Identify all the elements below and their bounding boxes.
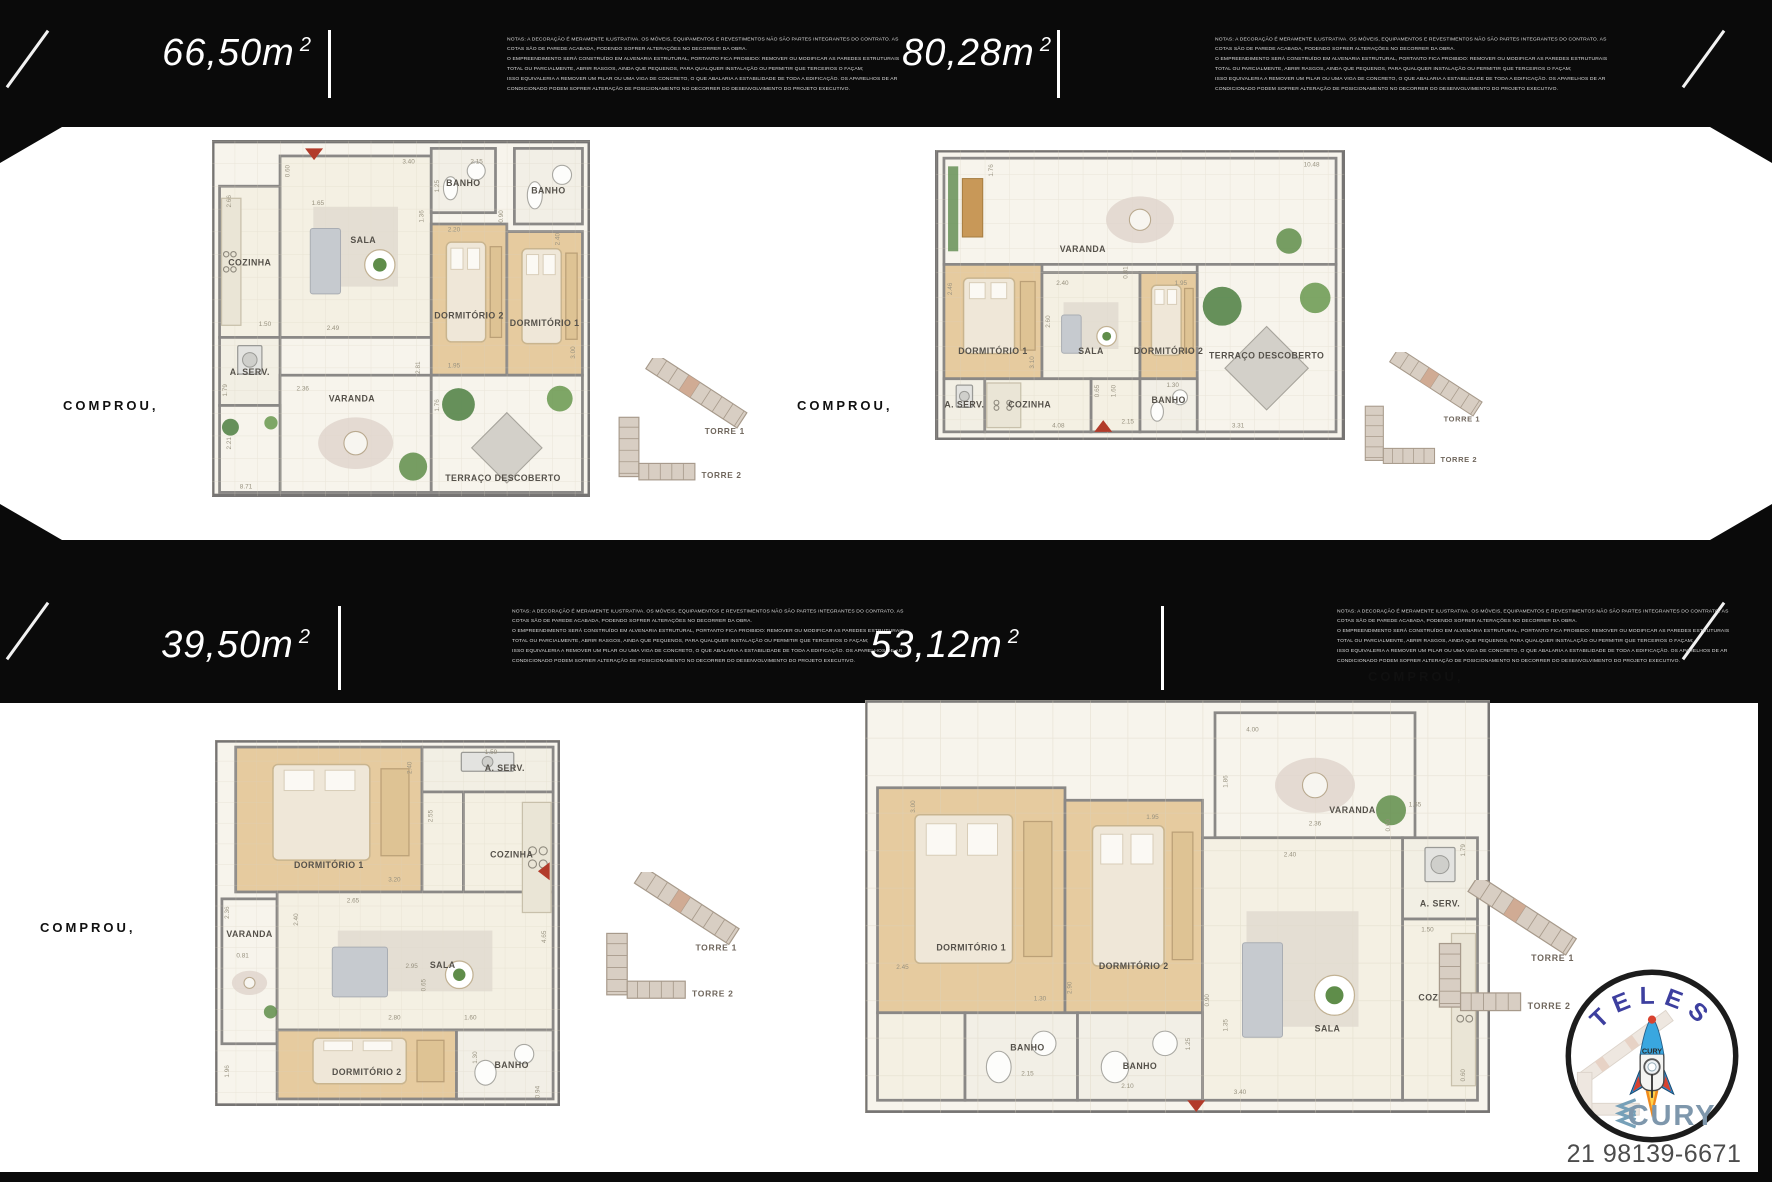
torre1-bar [634, 872, 739, 944]
wardrobe [1172, 832, 1193, 960]
wardrobe [1185, 288, 1194, 352]
notes-line: ISSO EQUIVALERIA A REMOVER UM PILAR OU U… [1215, 74, 1566, 84]
room-label: VARANDA [1060, 244, 1106, 254]
notes-line: COTAS SÃO DE PAREDE ACABADA, PODENDO SOF… [1215, 44, 1566, 54]
plant [1276, 228, 1301, 253]
dimension-label: 4.08 [1052, 423, 1065, 430]
room-label: VARANDA [329, 394, 376, 404]
area-label-3: 39,50m2 [161, 624, 311, 667]
dimension-label: 1.96 [224, 1065, 231, 1078]
dimension-label: 1.79 [222, 384, 229, 397]
notes-line: TOTAL OU PARCIALMENTE, ABRIR RASGOS, AIN… [1337, 636, 1688, 646]
dimension-label: 1.30 [1034, 995, 1047, 1002]
dimension-label: 2.40 [555, 232, 562, 245]
floorplan-53-12: DORMITÓRIO 1DORMITÓRIO 2VARANDAA. SERV.C… [865, 700, 1490, 1113]
torre2-bar-vertical [619, 417, 639, 476]
notes-line: TOTAL OU PARCIALMENTE, ABRIR RASGOS, AIN… [1215, 64, 1566, 74]
dimension-label: 1.60 [1110, 384, 1117, 397]
pillow [543, 255, 555, 275]
dimension-label: 1.30 [472, 1051, 479, 1064]
dimension-label: 2.60 [1045, 315, 1052, 328]
notes-line: O EMPREENDIMENTO SERÁ CONSTRUÍDO EM ALVE… [1215, 54, 1566, 64]
dimension-label: 2.46 [947, 282, 954, 295]
floorplan-66-50: COZINHAA. SERV.SALABANHOBANHODORMITÓRIO … [212, 140, 590, 497]
dimension-label: 2.15 [470, 159, 483, 166]
dimension-label: 0.81 [1123, 266, 1130, 279]
keyplan-torre2-label: TORRE 2 [692, 989, 734, 999]
comprou-text-1: COMPROU, [63, 398, 159, 413]
room-label: A. SERV. [485, 763, 525, 773]
wardrobe [417, 1040, 444, 1081]
torre2-bar-vertical [1365, 406, 1383, 460]
dimension-label: 0.81 [236, 953, 249, 960]
room-label: BANHO [1123, 1061, 1157, 1071]
area-sup: 2 [1040, 34, 1052, 56]
teles-cury-logo: TELES CURY CURY [1561, 965, 1743, 1147]
torre2-bar-vertical [607, 933, 627, 994]
room-label: SALA [350, 235, 376, 245]
banner-slash-decoration [6, 30, 50, 88]
pillow [1101, 834, 1123, 864]
floorplan-svg: COZINHAA. SERV.SALABANHOBANHODORMITÓRIO … [212, 140, 590, 497]
dimension-label: 2.95 [405, 963, 418, 970]
wardrobe [1020, 282, 1035, 351]
dimension-label: 2.36 [297, 385, 310, 392]
dimension-label: 3.31 [1232, 423, 1245, 430]
keyplan-torre2-label: TORRE 2 [701, 471, 741, 480]
notes-block-3: NOTAS: A DECORAÇÃO É MERAMENTE ILUSTRATI… [512, 606, 863, 665]
dimension-label: 0.60 [1385, 819, 1392, 832]
dimension-label: 4.00 [1246, 727, 1259, 734]
keyplan-torre2-label: TORRE 2 [1441, 455, 1478, 464]
dimension-label: 1.76 [988, 164, 995, 177]
pillow [526, 255, 538, 275]
dimension-label: 2.40 [1056, 280, 1069, 287]
notes-line: COTAS SÃO DE PAREDE ACABADA, PODENDO SOF… [512, 616, 863, 626]
room-label: DORMITÓRIO 1 [510, 317, 580, 328]
notes-line: O EMPREENDIMENTO SERÁ CONSTRUÍDO EM ALVE… [507, 54, 858, 64]
floorplan-svg: DORMITÓRIO 1A. SERV.COZINHAVARANDASALADO… [215, 740, 560, 1106]
notes-line: NOTAS: A DECORAÇÃO É MERAMENTE ILUSTRATI… [512, 606, 863, 616]
dimension-label: 2.66 [226, 195, 233, 208]
room-label: DORMITÓRIO 2 [332, 1066, 402, 1077]
sofa [332, 947, 387, 997]
pillow [1155, 290, 1164, 305]
dimension-label: 3.40 [1234, 1089, 1247, 1096]
dimension-label: 1.50 [259, 321, 272, 328]
area-value: 66,50m [162, 32, 295, 74]
dimension-label: 1.86 [1223, 775, 1230, 788]
torre2-bar-vertical [1439, 944, 1460, 1008]
notes-line: CONDICIONADO PODEM SOFRER ALTERAÇÃO DE P… [1337, 656, 1688, 666]
torre1-bar [1390, 352, 1482, 416]
notes-line: O EMPREENDIMENTO SERÁ CONSTRUÍDO EM ALVE… [512, 626, 863, 636]
dimension-label: 2.21 [226, 437, 233, 450]
table [1303, 773, 1328, 798]
notes-line: NOTAS: A DECORAÇÃO É MERAMENTE ILUSTRATI… [1337, 606, 1688, 616]
room-label: COZINHA [1008, 399, 1051, 409]
dimension-label: 2.10 [1121, 1083, 1134, 1090]
dimension-label: 2.36 [224, 906, 231, 919]
table [1129, 209, 1150, 230]
floorplan-svg: DORMITÓRIO 1DORMITÓRIO 2VARANDAA. SERV.C… [865, 700, 1490, 1113]
room-label: DORMITÓRIO 1 [958, 345, 1027, 356]
plant [547, 386, 573, 412]
dimension-label: 2.40 [293, 913, 300, 926]
room-label: SALA [1078, 346, 1104, 356]
area-sup: 2 [299, 626, 311, 648]
comprou-text-4: COMPROU, [1368, 669, 1464, 684]
area-value: 80,28m [902, 32, 1035, 74]
area-value: 39,50m [161, 624, 294, 666]
dimension-label: 1.95 [448, 363, 461, 370]
banner-slash-decoration [6, 602, 50, 660]
notes-line: CONDICIONADO PODEM SOFRER ALTERAÇÃO DE P… [1215, 84, 1566, 94]
dimension-label: 0.65 [420, 978, 427, 991]
dimension-label: 1.35 [1223, 1019, 1230, 1032]
rocket-label: CURY [1642, 1046, 1662, 1055]
pillow [968, 824, 998, 856]
flyer: 66,50m2 NOTAS: A DECORAÇÃO É MERAMENTE I… [0, 0, 1772, 1182]
keyplan-torre1-label: TORRE 1 [695, 942, 737, 952]
top-banner: 66,50m2 NOTAS: A DECORAÇÃO É MERAMENTE I… [0, 0, 1772, 127]
keyplan-2: TORRE 1TORRE 2 [1348, 352, 1503, 480]
keyplan-svg: TORRE 1TORRE 2 [600, 358, 770, 498]
keyplan-1: TORRE 1TORRE 2 [600, 358, 770, 498]
dimension-label: 1.79 [1460, 844, 1467, 857]
sofa [1243, 943, 1283, 1038]
notes-line: CONDICIONADO PODEM SOFRER ALTERAÇÃO DE P… [507, 84, 858, 94]
notes-line: CONDICIONADO PODEM SOFRER ALTERAÇÃO DE P… [512, 656, 863, 666]
room-label: BANHO [1151, 395, 1185, 405]
torre2-bar-horizontal [627, 981, 685, 998]
room-label: DORMITÓRIO 2 [434, 310, 504, 321]
pillow [324, 1041, 353, 1051]
keyplan-svg: TORRE 1TORRE 2 [1348, 352, 1503, 480]
keyplan-svg: TORRE 1TORRE 2 [585, 872, 765, 1017]
plant [264, 1005, 277, 1018]
sofa [310, 229, 340, 294]
room-label: DORMITÓRIO 1 [294, 859, 364, 870]
ribbon-corner [1710, 127, 1772, 163]
dimension-label: 3.10 [1029, 356, 1036, 369]
dimension-label: 2.80 [388, 1015, 401, 1022]
dimension-label: 2.55 [427, 809, 434, 822]
dimension-label: 1.65 [1409, 802, 1422, 809]
dimension-label: 1.60 [464, 1015, 477, 1022]
dimension-label: 1.25 [434, 180, 441, 193]
torre2-bar-horizontal [1461, 993, 1521, 1011]
room-label: DORMITÓRIO 1 [936, 941, 1006, 952]
banner-separator [1161, 606, 1164, 690]
plant [264, 416, 277, 429]
table [344, 431, 367, 454]
dimension-label: 4.65 [541, 930, 548, 943]
dimension-label: 2.81 [415, 361, 422, 374]
dimension-label: 0.60 [1460, 1069, 1467, 1082]
plant [1300, 283, 1331, 314]
dimension-label: 2.15 [1021, 1070, 1034, 1077]
dimension-label: 1.36 [419, 210, 426, 223]
ribbon-corner [1710, 504, 1772, 540]
dimension-label: 0.65 [1094, 384, 1101, 397]
pillow [969, 283, 985, 299]
notes-line: NOTAS: A DECORAÇÃO É MERAMENTE ILUSTRATI… [507, 34, 858, 44]
sink [553, 165, 572, 184]
dimension-label: 2.20 [448, 227, 461, 234]
right-frame-strip [1758, 540, 1772, 1182]
room-label: SALA [1315, 1024, 1341, 1034]
torre1-bar [646, 358, 747, 428]
dimension-label: 1.25 [1185, 1037, 1192, 1050]
keyplan-3: TORRE 1TORRE 2 [585, 872, 765, 1017]
plant [373, 258, 387, 272]
notes-line: ISSO EQUIVALERIA A REMOVER UM PILAR OU U… [512, 646, 863, 656]
keyplan-torre1-label: TORRE 1 [705, 427, 745, 436]
comprou-text-2: COMPROU, [797, 398, 893, 413]
notes-line: TOTAL OU PARCIALMENTE, ABRIR RASGOS, AIN… [512, 636, 863, 646]
torre2-bar-horizontal [639, 463, 695, 479]
keyplan-torre1-label: TORRE 1 [1531, 953, 1574, 963]
washer-door [243, 353, 258, 368]
area-label-2: 80,28m2 [902, 32, 1052, 75]
dimension-label: 2.45 [896, 964, 909, 971]
floorplan-39-50: DORMITÓRIO 1A. SERV.COZINHAVARANDASALADO… [215, 740, 560, 1106]
dimension-label: 1.59 [485, 749, 498, 756]
room-label: TERRAÇO DESCOBERTO [1209, 350, 1324, 360]
area-sup: 2 [300, 34, 312, 56]
washer-door [1431, 856, 1449, 874]
ribbon-corner [0, 504, 62, 540]
dimension-label: 0.90 [1204, 994, 1211, 1007]
notes-block-4: NOTAS: A DECORAÇÃO É MERAMENTE ILUSTRATI… [1337, 606, 1688, 665]
dimension-label: 1.95 [1175, 280, 1188, 287]
mid-banner: 39,50m2 NOTAS: A DECORAÇÃO É MERAMENTE I… [0, 540, 1772, 703]
pillow [451, 248, 463, 269]
dimension-label: 1.95 [1146, 814, 1159, 821]
table [244, 977, 255, 988]
torre1-bar [1468, 880, 1576, 955]
dimension-label: 3.00 [570, 346, 577, 359]
plant [1326, 986, 1344, 1004]
notes-block-2: NOTAS: A DECORAÇÃO É MERAMENTE ILUSTRATI… [1215, 34, 1566, 93]
keyplan-torre1-label: TORRE 1 [1444, 414, 1481, 423]
wardrobe [1024, 822, 1052, 957]
toilet [475, 1060, 496, 1085]
dimension-label: 1.30 [1166, 382, 1179, 389]
dimension-label: 2.90 [1066, 981, 1073, 994]
room-label: BANHO [446, 178, 480, 188]
pillow [991, 283, 1007, 299]
notes-line: NOTAS: A DECORAÇÃO É MERAMENTE ILUSTRATI… [1215, 34, 1566, 44]
dimension-label: 3.00 [910, 800, 917, 813]
room-label: A. SERV. [944, 399, 984, 409]
notes-line: O EMPREENDIMENTO SERÁ CONSTRUÍDO EM ALVE… [1337, 626, 1688, 636]
notes-line: COTAS SÃO DE PAREDE ACABADA, PODENDO SOF… [507, 44, 858, 54]
area-sup: 2 [1008, 626, 1020, 648]
ribbon-corner [0, 127, 62, 163]
bottom-frame-strip [0, 1172, 1772, 1182]
banner-separator [1057, 30, 1060, 98]
planter-box [962, 179, 982, 237]
wardrobe [381, 769, 409, 856]
pillow [284, 770, 314, 790]
pillow [1167, 290, 1176, 305]
floorplan-svg: VARANDATERRAÇO DESCOBERTODORMITÓRIO 1SAL… [935, 150, 1345, 440]
notes-line: ISSO EQUIVALERIA A REMOVER UM PILAR OU U… [507, 74, 858, 84]
toilet [986, 1051, 1011, 1083]
comprou-text-3: COMPROU, [40, 920, 136, 935]
room-label: VARANDA [226, 929, 273, 939]
dimension-label: 3.20 [388, 877, 401, 884]
dimension-label: 2.36 [1309, 820, 1322, 827]
plant [453, 969, 465, 981]
room-label: A. SERV. [230, 367, 270, 377]
logo-brand-bottom: CURY [1628, 1100, 1717, 1132]
plant [399, 453, 427, 481]
plant [1203, 287, 1242, 326]
planter-hedge [948, 166, 958, 251]
room-label: BANHO [494, 1060, 528, 1070]
dimension-label: 0.94 [534, 1085, 541, 1098]
wardrobe [490, 247, 501, 338]
room-label: BANHO [531, 186, 565, 196]
plant [222, 419, 239, 436]
dimension-label: 2.40 [1284, 852, 1297, 859]
room-label: SALA [430, 960, 456, 970]
area-label-4: 53,12m2 [870, 624, 1020, 667]
sink [1153, 1031, 1178, 1056]
plant [1102, 332, 1111, 341]
pillow [325, 770, 355, 790]
dimension-label: 2.49 [327, 325, 340, 332]
dimension-label: 1.76 [434, 399, 441, 412]
room-label: COZINHA [490, 849, 533, 859]
torre2-bar-horizontal [1383, 448, 1434, 463]
dimension-label: 0.60 [284, 164, 291, 177]
dimension-label: 2.65 [347, 897, 360, 904]
dimension-label: 10.48 [1304, 161, 1320, 168]
plant [442, 388, 475, 421]
area-value: 53,12m [870, 624, 1003, 666]
banner-slash-decoration [1682, 30, 1726, 88]
area-label-1: 66,50m2 [162, 32, 312, 75]
room-label: DORMITÓRIO 2 [1099, 960, 1169, 971]
dimension-label: 3.40 [402, 159, 415, 166]
dimension-label: 0.90 [498, 210, 505, 223]
pillow [926, 824, 956, 856]
room-label: TERRAÇO DESCOBERTO [445, 473, 561, 483]
dimension-label: 2.15 [1122, 419, 1135, 426]
pillow [1131, 834, 1153, 864]
notes-block-1: NOTAS: A DECORAÇÃO É MERAMENTE ILUSTRATI… [507, 34, 858, 93]
pillow [468, 248, 480, 269]
dimension-label: 2.40 [407, 761, 414, 774]
notes-line: ISSO EQUIVALERIA A REMOVER UM PILAR OU U… [1337, 646, 1688, 656]
dimension-label: 8.71 [240, 484, 253, 491]
dimension-label: 1.65 [312, 200, 325, 207]
room-label: DORMITÓRIO 2 [1134, 345, 1203, 356]
pillow [363, 1041, 392, 1051]
room-label: BANHO [1010, 1042, 1044, 1052]
room-label: VARANDA [1329, 805, 1376, 815]
notes-line: TOTAL OU PARCIALMENTE, ABRIR RASGOS, AIN… [507, 64, 858, 74]
notes-line: COTAS SÃO DE PAREDE ACABADA, PODENDO SOF… [1337, 616, 1688, 626]
banner-separator [338, 606, 341, 690]
banner-separator [328, 30, 331, 98]
floorplan-80-28: VARANDATERRAÇO DESCOBERTODORMITÓRIO 1SAL… [935, 150, 1345, 440]
room-label: COZINHA [228, 258, 271, 268]
